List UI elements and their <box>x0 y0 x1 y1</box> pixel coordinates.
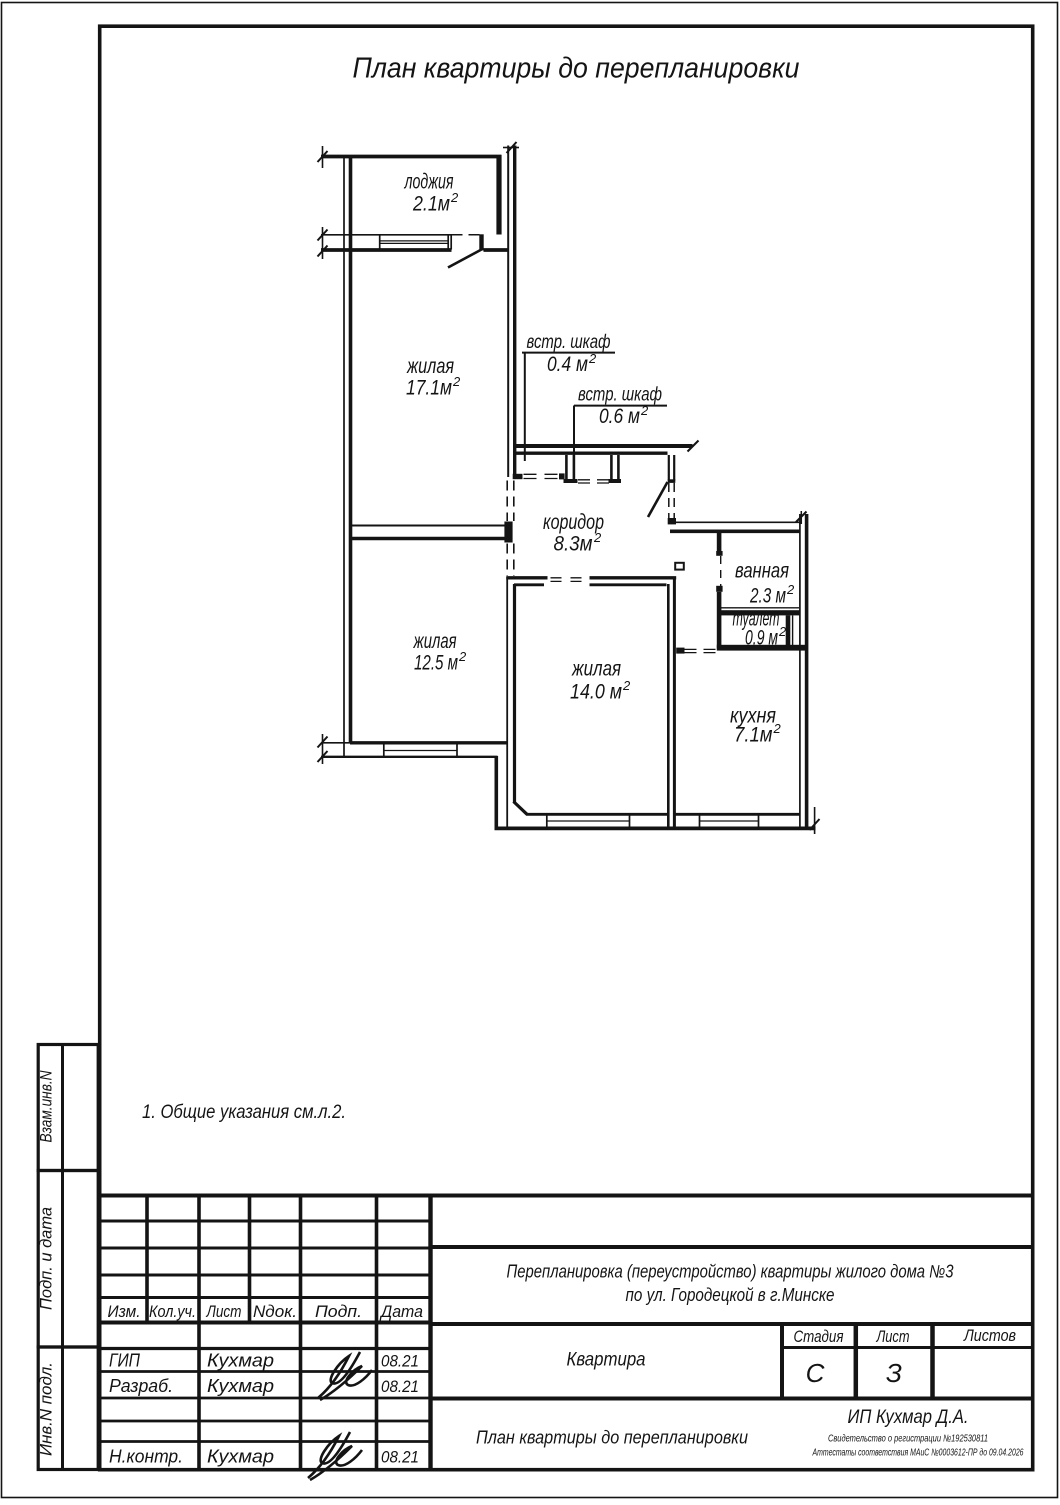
svg-text:1. Общие указания см.л.2.: 1. Общие указания см.л.2. <box>142 1102 346 1123</box>
svg-text:Подп.: Подп. <box>315 1302 362 1321</box>
svg-text:08.21: 08.21 <box>381 1352 419 1371</box>
svg-text:2: 2 <box>622 678 631 693</box>
svg-text:жилая: жилая <box>406 355 454 378</box>
svg-text:2: 2 <box>786 582 795 597</box>
svg-text:С: С <box>806 1358 825 1388</box>
svg-text:2.1м: 2.1м <box>412 193 450 216</box>
svg-text:08.21: 08.21 <box>381 1377 419 1396</box>
svg-text:Перепланировка (переустройств: Перепланировка (переустройство) квартиры… <box>507 1262 954 1282</box>
svg-text:жилая: жилая <box>571 658 621 681</box>
svg-text:Nдок.: Nдок. <box>253 1302 297 1321</box>
svg-text:Кухмар: Кухмар <box>207 1376 274 1396</box>
svg-text:Стадия: Стадия <box>794 1328 844 1346</box>
svg-text:ванная: ванная <box>735 560 789 583</box>
svg-text:Взам.инв.N: Взам.инв.N <box>37 1070 56 1143</box>
svg-text:Аттестаты соответствия МАиС №0: Аттестаты соответствия МАиС №0003612-ПР … <box>812 1448 1024 1459</box>
svg-text:З: З <box>886 1358 902 1388</box>
svg-text:08.21: 08.21 <box>381 1448 419 1467</box>
svg-text:7.1м: 7.1м <box>734 724 773 747</box>
svg-text:2.3 м: 2.3 м <box>749 585 786 608</box>
svg-text:2: 2 <box>593 530 602 545</box>
svg-text:2: 2 <box>450 190 459 205</box>
svg-text:2: 2 <box>452 374 461 389</box>
svg-text:лоджия: лоджия <box>404 171 454 194</box>
svg-text:14.0 м: 14.0 м <box>570 681 622 704</box>
svg-text:2: 2 <box>778 624 787 639</box>
svg-text:Дата: Дата <box>379 1302 423 1321</box>
svg-text:8.3м: 8.3м <box>554 533 593 556</box>
svg-text:12.5 м: 12.5 м <box>414 652 458 675</box>
svg-text:Кол.уч.: Кол.уч. <box>149 1302 196 1321</box>
svg-text:Лист: Лист <box>206 1302 242 1321</box>
svg-text:жилая: жилая <box>413 630 457 653</box>
svg-text:Квартира: Квартира <box>567 1350 646 1371</box>
svg-text:Кухмар: Кухмар <box>207 1447 274 1467</box>
svg-text:Свидетельство о регистрации №1: Свидетельство о регистрации №192530811 <box>828 1434 988 1445</box>
svg-text:2: 2 <box>773 721 782 736</box>
svg-text:ИП Кухмар Д.А.: ИП Кухмар Д.А. <box>848 1406 969 1428</box>
svg-text:17.1м: 17.1м <box>406 377 452 400</box>
svg-text:Инв.N подл.: Инв.N подл. <box>37 1362 56 1456</box>
svg-text:Кухмар: Кухмар <box>207 1351 274 1371</box>
svg-text:План квартиры до перепланировк: План квартиры до перепланировки <box>476 1428 748 1448</box>
svg-text:Разраб.: Разраб. <box>109 1376 173 1396</box>
svg-text:Лист: Лист <box>876 1328 910 1346</box>
svg-text:Изм.: Изм. <box>108 1302 141 1321</box>
svg-text:2: 2 <box>458 649 467 664</box>
svg-text:по ул. Городецкой в г.Минске: по ул. Городецкой в г.Минске <box>626 1285 835 1305</box>
svg-text:Подп. и дата: Подп. и дата <box>37 1207 56 1310</box>
svg-text:Н.контр.: Н.контр. <box>109 1447 183 1467</box>
svg-text:встр. шкаф: встр. шкаф <box>578 385 662 406</box>
svg-text:План квартиры до перепланир: План квартиры до перепланировки <box>353 53 800 85</box>
svg-text:0.4 м: 0.4 м <box>547 353 588 376</box>
svg-text:0.6 м: 0.6 м <box>599 405 640 428</box>
svg-text:ГИП: ГИП <box>109 1351 141 1371</box>
svg-text:Листов: Листов <box>963 1327 1016 1345</box>
svg-text:встр. шкаф: встр. шкаф <box>527 332 611 353</box>
svg-text:0.9 м: 0.9 м <box>745 627 778 650</box>
